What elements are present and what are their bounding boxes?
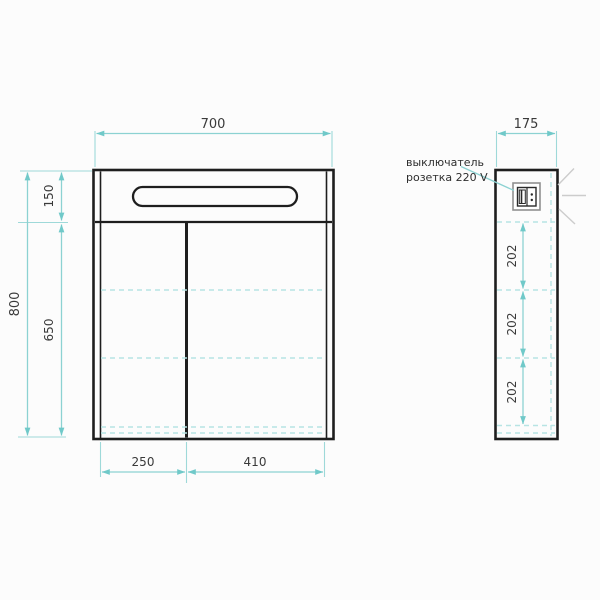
front-view (94, 170, 334, 439)
dim-front-width: 700 (95, 117, 332, 167)
dim-shelf-spacing-1-label: 202 (505, 245, 519, 268)
dim-front-width-label: 700 (201, 117, 226, 132)
dim-body-height-label: 650 (42, 319, 56, 342)
dim-light-section-label: 150 (42, 185, 56, 208)
annotation-line2: розетка 220 V (406, 171, 488, 184)
dim-side-depth-label: 175 (514, 117, 539, 132)
dim-left-door-label: 250 (132, 455, 155, 469)
dim-total-height-label: 800 (8, 292, 23, 317)
dim-left-group: 800 150 650 (8, 171, 92, 437)
cabinet-technical-drawing: выключатель розетка 220 V 700 175 800 15… (0, 0, 600, 600)
dim-shelf-spacing-3-label: 202 (505, 381, 519, 404)
light-rays-icon (558, 169, 586, 225)
switch-socket-icon (513, 183, 540, 210)
drawing-svg: выключатель розетка 220 V 700 175 800 15… (0, 0, 600, 600)
front-cabinet-outline (94, 170, 334, 439)
switch-annotation: выключатель розетка 220 V (406, 156, 514, 191)
dim-shelf-spacing-group: 202 202 202 (505, 224, 523, 425)
light-slot-capsule (133, 187, 297, 206)
dim-shelf-spacing-2-label: 202 (505, 313, 519, 336)
dim-right-door-label: 410 (244, 455, 267, 469)
dim-doors-group: 250 410 (101, 442, 325, 483)
front-shelf-dashed-lines (101, 290, 326, 433)
annotation-line1: выключатель (406, 156, 484, 169)
dim-side-depth: 175 (497, 117, 557, 167)
